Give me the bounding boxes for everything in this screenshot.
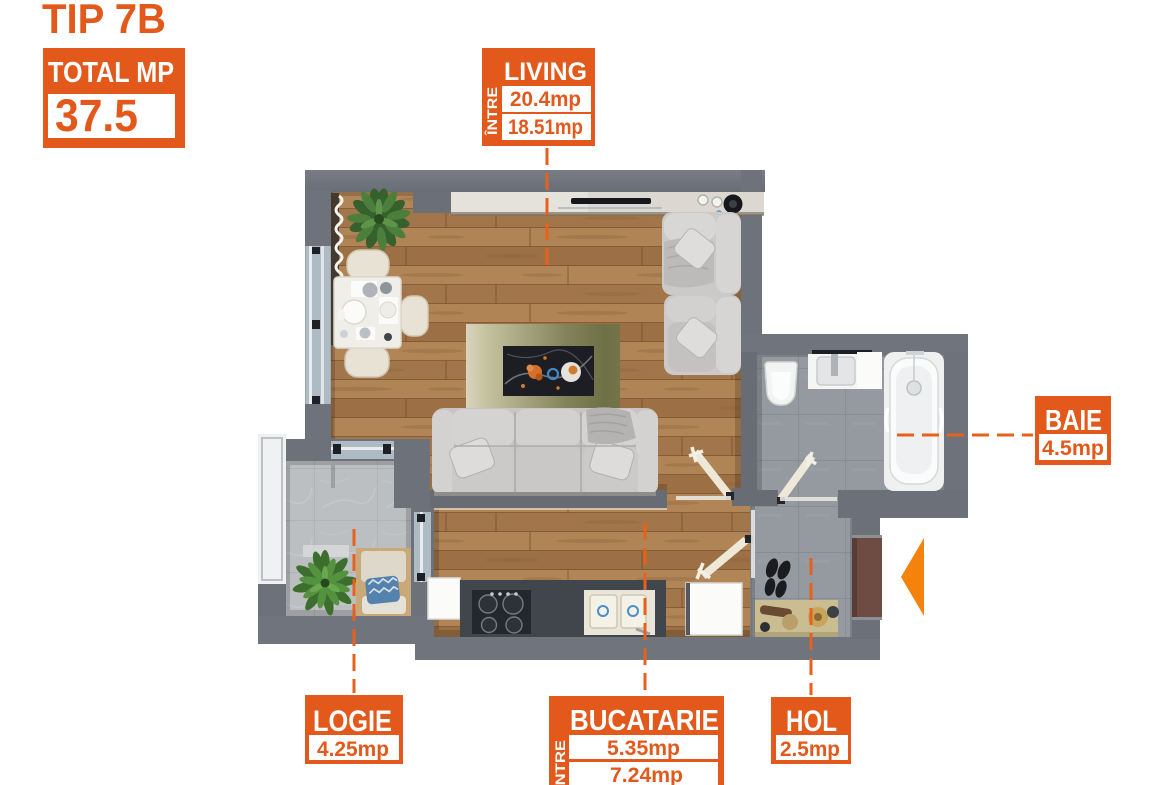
svg-text:TIP 7B: TIP 7B <box>42 0 166 42</box>
svg-text:BAIE: BAIE <box>1045 405 1102 437</box>
svg-text:LIVING: LIVING <box>504 58 587 86</box>
svg-text:TOTAL MP: TOTAL MP <box>48 57 174 89</box>
svg-text:5.35mp: 5.35mp <box>607 737 680 760</box>
svg-text:BUCATARIE: BUCATARIE <box>570 705 719 737</box>
svg-text:HOL: HOL <box>786 705 837 738</box>
svg-text:18.51mp: 18.51mp <box>508 116 583 139</box>
svg-text:ÎNTRE: ÎNTRE <box>483 87 500 136</box>
svg-text:ÎNTRE: ÎNTRE <box>551 740 568 785</box>
svg-text:37.5: 37.5 <box>55 90 138 141</box>
svg-text:4.5mp: 4.5mp <box>1042 437 1104 460</box>
svg-text:20.4mp: 20.4mp <box>510 88 581 111</box>
svg-text:7.24mp: 7.24mp <box>610 764 683 785</box>
svg-text:LOGIE: LOGIE <box>313 705 392 738</box>
svg-text:4.25mp: 4.25mp <box>317 738 389 761</box>
svg-text:2.5mp: 2.5mp <box>780 738 840 761</box>
